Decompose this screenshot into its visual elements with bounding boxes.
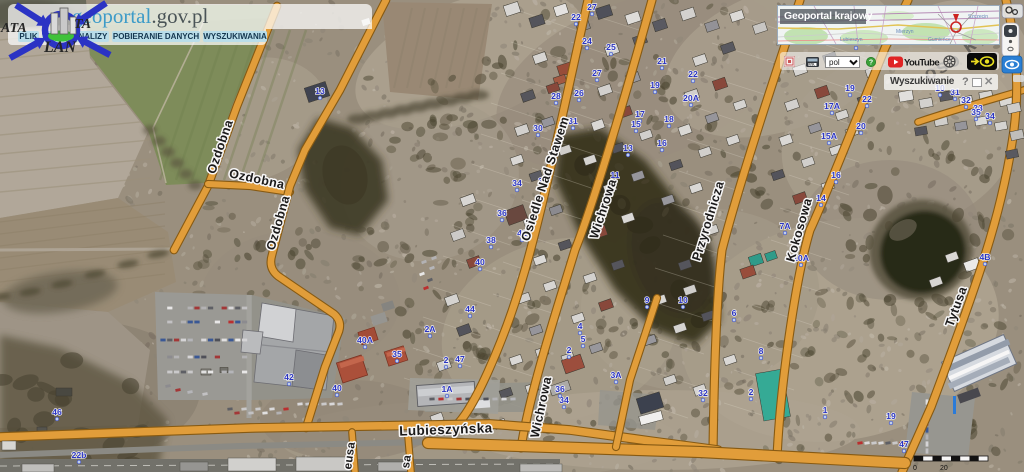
svg-text:Mierzyn: Mierzyn: [896, 29, 914, 35]
svg-text:USL: USL: [809, 63, 815, 67]
svg-text:Lubieszyn: Lubieszyn: [840, 37, 863, 43]
svg-text:ATA: ATA: [0, 21, 27, 36]
svg-text:?: ?: [869, 60, 873, 67]
svg-text:TA: TA: [74, 17, 91, 32]
svg-text:YouTube: YouTube: [904, 57, 939, 68]
svg-text:Gumieńce: Gumieńce: [928, 37, 951, 43]
svg-text:LAN: LAN: [43, 39, 77, 56]
